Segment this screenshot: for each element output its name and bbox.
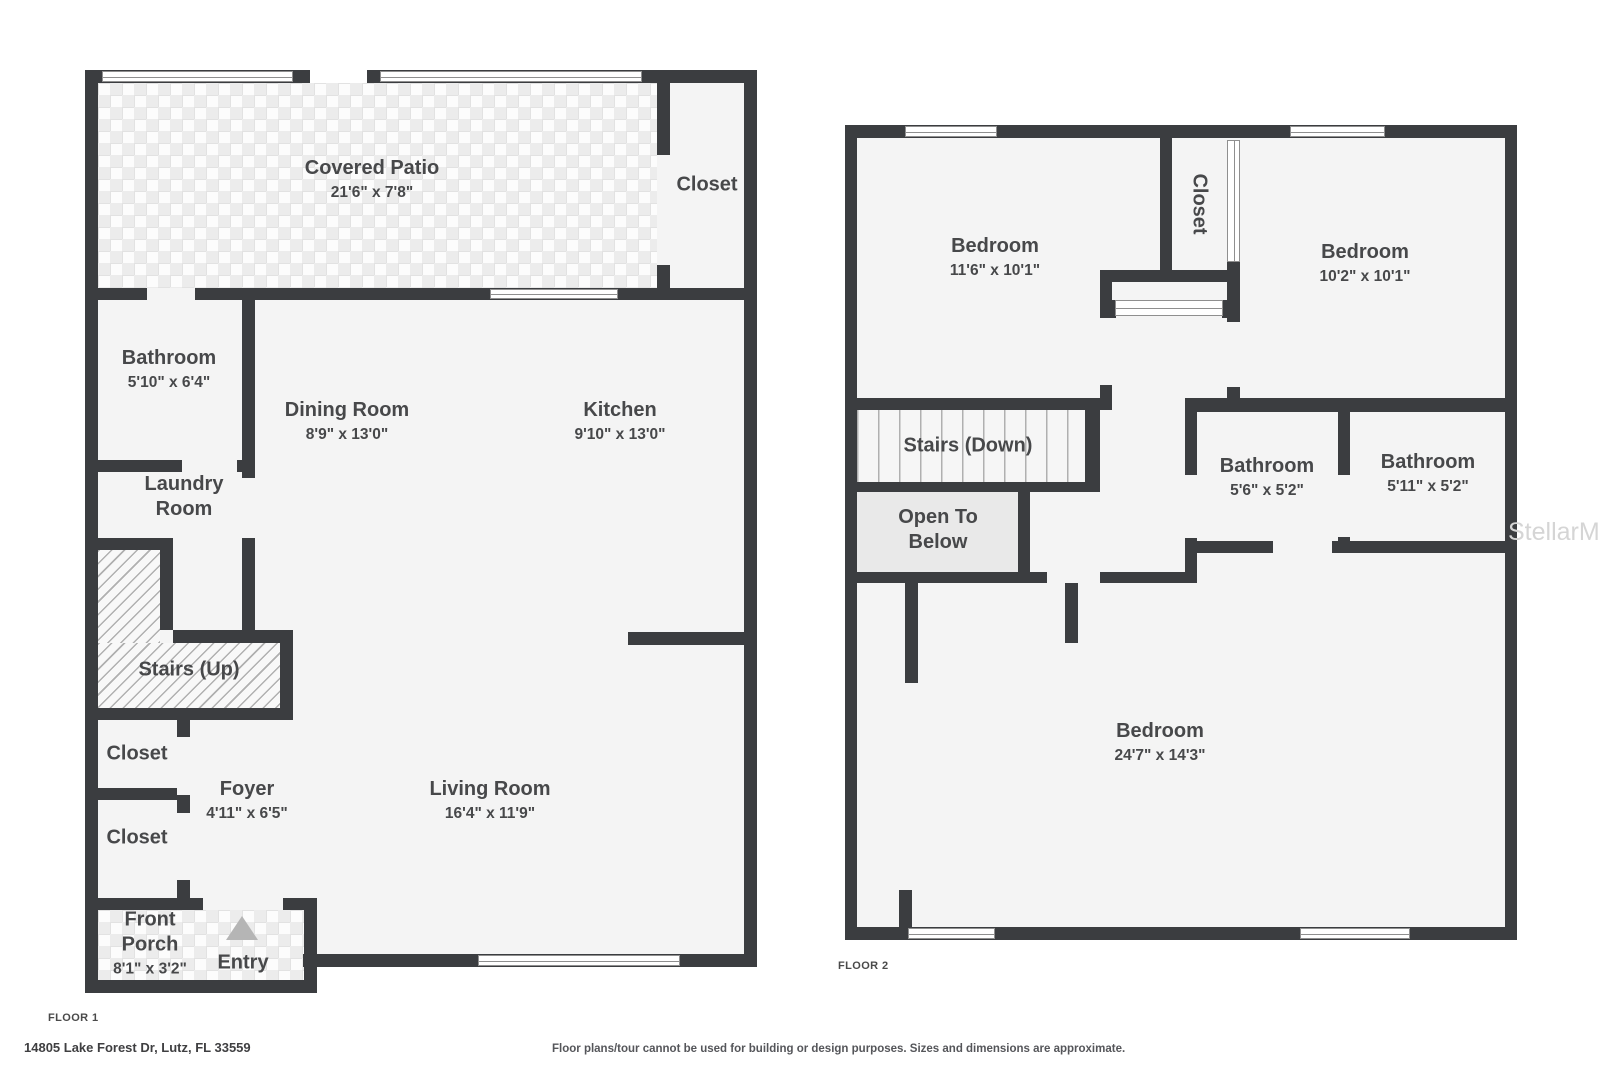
room-dims: 10'2" x 10'1" [1319,268,1410,286]
room-dims: 16'4" x 11'9" [429,805,550,823]
door-opening [657,155,670,265]
room-dims: 8'9" x 13'0" [285,426,409,444]
wall-segment [905,583,918,683]
wall-segment [1222,300,1240,318]
room-label-stairs-down: Stairs (Down) [904,434,1033,459]
floor2-tag: FLOOR 2 [838,960,888,972]
room-name: Closet [1187,173,1212,234]
room-dims: 5'6" x 5'2" [1220,482,1314,500]
wall-segment [280,630,293,720]
wall-segment [1160,138,1172,272]
room-label-bathroom-right: Bathroom 5'11" x 5'2" [1381,450,1475,496]
room-name: Foyer [206,777,288,802]
room-dims: 5'11" x 5'2" [1381,478,1475,496]
wall-segment [304,898,317,993]
room-dims: 11'6" x 10'1" [950,262,1040,280]
room-name: Laundry Room [129,472,239,522]
room-name: Bedroom [1114,719,1205,744]
room-name: Bedroom [1319,240,1410,265]
door-opening [182,460,237,472]
wall-segment [85,538,173,550]
room-dims: 21'6" x 7'8" [305,184,439,202]
wall-segment [1338,412,1350,475]
wall-segment [1018,482,1030,583]
room-label-closet-f2: Closet [1187,173,1212,234]
room-name: Covered Patio [305,156,439,181]
room-label-laundry-room: Laundry Room [129,472,239,522]
room-name: Bathroom [122,346,216,371]
stair-railing [1115,300,1223,316]
room-name: Kitchen [574,398,665,423]
door-opening [147,288,195,300]
wall-segment [899,890,912,928]
wall-segment [1185,412,1197,475]
wall-segment [845,482,1100,492]
wall-segment [845,572,1047,583]
window [1290,126,1385,137]
room-name: Dining Room [285,398,409,423]
room-label-open-to-below: Open To Below [888,505,988,555]
room-label-entry: Entry [217,951,268,976]
window [490,289,618,299]
room-name: Closet [106,826,167,851]
room-label-bedroom-left: Bedroom 11'6" x 10'1" [950,234,1040,280]
door-opening [177,813,190,880]
wall-segment [1085,398,1100,492]
entry-arrow-icon [226,916,258,940]
wall-segment [173,630,293,643]
room-dims: 5'10" x 6'4" [122,374,216,392]
room-label-bathroom-f1: Bathroom 5'10" x 6'4" [122,346,216,392]
window [380,71,642,82]
wall-segment [744,70,757,967]
room-name: Stairs (Down) [904,434,1033,459]
property-address: 14805 Lake Forest Dr, Lutz, FL 33559 [24,1040,251,1055]
floor-plan-canvas: Covered Patio 21'6" x 7'8" Closet Bathro… [0,0,1600,1066]
room-label-patio-closet: Closet [676,173,737,198]
window [478,955,680,966]
room-label-bedroom-right: Bedroom 10'2" x 10'1" [1319,240,1410,286]
entry-door-opening [203,898,283,910]
wall-segment [1185,541,1517,553]
room-name: Bathroom [1220,454,1314,479]
room-name: Entry [217,951,268,976]
closet-door [1227,140,1240,262]
wall-segment [242,288,255,472]
room-name: Bedroom [950,234,1040,259]
room-label-stairs-up: Stairs (Up) [138,658,239,683]
door-opening [177,737,190,795]
room-label-covered-patio: Covered Patio 21'6" x 7'8" [305,156,439,202]
room-dims: 9'10" x 13'0" [574,426,665,444]
wall-segment [1065,583,1078,643]
window [1300,928,1410,939]
room-label-closet-b: Closet [106,826,167,851]
floor1-tag: FLOOR 1 [48,1012,98,1024]
room-label-dining-room: Dining Room 8'9" x 13'0" [285,398,409,444]
window [905,126,997,137]
room-dims: 4'11" x 6'5" [206,805,288,823]
room-name: Stairs (Up) [138,658,239,683]
wall-segment [1100,270,1240,282]
wall-segment [628,632,757,645]
room-dims: 8'1" x 3'2" [105,961,195,979]
window [908,928,995,939]
room-label-closet-a: Closet [106,742,167,767]
wall-segment [160,550,173,630]
wall-segment [845,125,857,940]
wall-segment [1100,572,1197,583]
room-name: Front Porch [105,908,195,958]
wall-segment [1185,398,1517,412]
door-opening [1273,541,1332,553]
wall-segment [85,980,317,993]
room-name: Closet [106,742,167,767]
room-label-bathroom-left: Bathroom 5'6" x 5'2" [1220,454,1314,500]
wall-segment [85,70,98,993]
wall-segment [845,398,1110,410]
room-label-foyer: Foyer 4'11" x 6'5" [206,777,288,823]
room-dims: 24'7" x 14'3" [1114,747,1205,765]
disclaimer-text: Floor plans/tour cannot be used for buil… [552,1043,1125,1055]
patio-opening [310,70,367,83]
room-name: Open To Below [888,505,988,555]
room-label-kitchen: Kitchen 9'10" x 13'0" [574,398,665,444]
room-label-front-porch: Front Porch 8'1" x 3'2" [105,908,195,979]
room-label-bedroom-primary: Bedroom 24'7" x 14'3" [1114,719,1205,765]
stellar-mls-watermark: StellarMLS [1508,518,1600,547]
window [102,71,293,82]
wall-segment [85,788,190,800]
door-opening [242,478,255,538]
room-name: Bathroom [1381,450,1475,475]
room-name: Closet [676,173,737,198]
room-name: Living Room [429,777,550,802]
room-label-living-room: Living Room 16'4" x 11'9" [429,777,550,823]
